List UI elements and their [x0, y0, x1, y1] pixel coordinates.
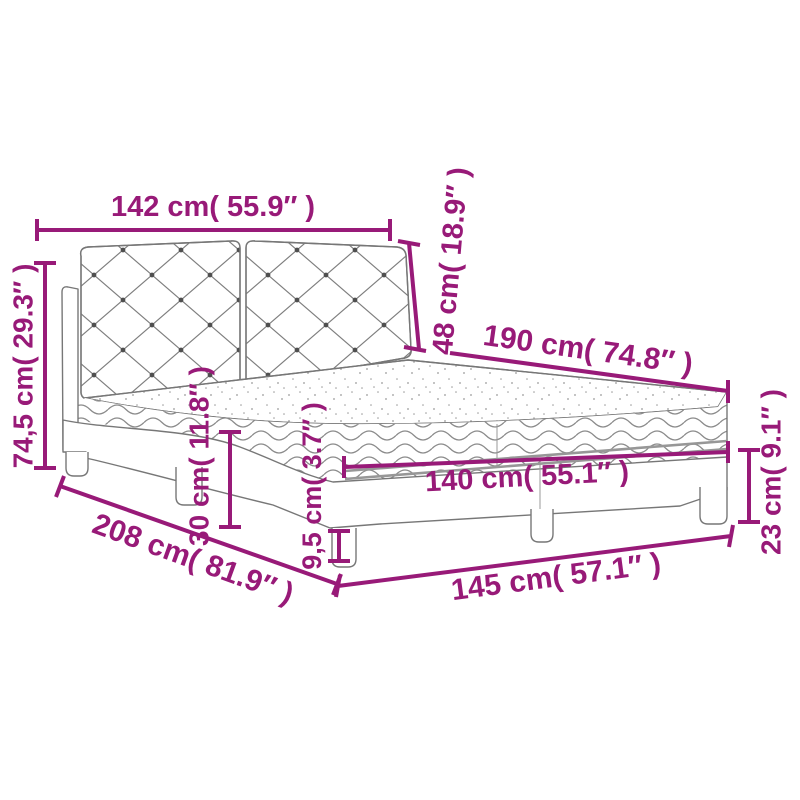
- dim-label-total-height: 74,5 cm( 29.3″ ): [8, 264, 39, 469]
- bed-dimension-diagram: 142 cm( 55.9″ ) 74,5 cm( 29.3″ ) 48 cm( …: [0, 0, 800, 800]
- dim-label-total-width: 145 cm( 57.1″ ): [449, 547, 663, 607]
- dim-label-frame-height: 30 cm( 11.8″ ): [184, 366, 215, 546]
- leg: [66, 452, 88, 476]
- leg: [531, 509, 553, 542]
- dim-label-headboard-height: 48 cm( 18.9″ ): [427, 166, 475, 356]
- dim-label-leg-height: 23 cm( 9.1″ ): [756, 389, 787, 555]
- dim-label-headboard-width: 142 cm( 55.9″ ): [111, 191, 315, 223]
- bed-illustration: [62, 241, 727, 567]
- leg: [700, 487, 727, 524]
- dim-label-slat-clearance: 9,5 cm( 3.7″ ): [297, 402, 327, 570]
- diagram-canvas: 142 cm( 55.9″ ) 74,5 cm( 29.3″ ) 48 cm( …: [0, 0, 800, 800]
